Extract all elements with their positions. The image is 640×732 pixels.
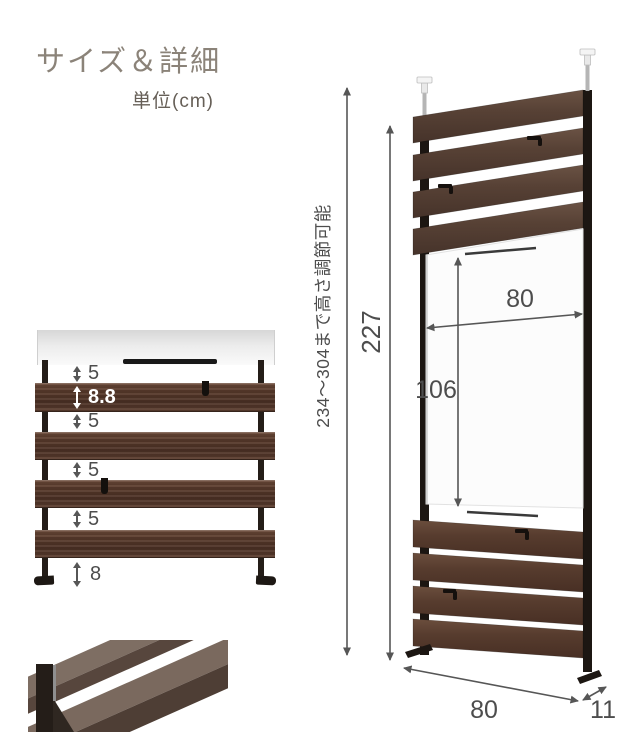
- wood-slat: [35, 480, 275, 508]
- dim-arrow-slat-width: [73, 386, 81, 409]
- dim-label-foot-clearance: 8: [90, 563, 101, 586]
- frame-height-label: 227: [356, 310, 386, 353]
- wood-slat: [35, 383, 275, 412]
- foot-right: [577, 670, 602, 684]
- foot-right: [256, 575, 276, 585]
- dim-label-slat-width: 8.8: [88, 386, 116, 409]
- depth-label: 11: [590, 696, 616, 724]
- wood-slat: [413, 619, 583, 658]
- dim-label-gap-top: 5: [88, 362, 99, 385]
- wood-slat: [413, 520, 583, 559]
- wood-slat: [35, 432, 275, 460]
- dim-arrow-gap-top: [73, 366, 81, 382]
- open-height-label: 106: [415, 376, 457, 404]
- dim-arrow-foot-clearance: [73, 562, 81, 587]
- perspective-view-diagram: 234〜304まで高さ調節可能 227 80 106 80 11: [300, 40, 640, 732]
- top-slats: [413, 90, 583, 255]
- dim-arrow-gap-3: [73, 462, 81, 478]
- hook-rail: [123, 359, 217, 364]
- dim-arrow-gap-4: [73, 510, 81, 528]
- bottom-slats: [413, 520, 583, 658]
- foot-left: [34, 575, 54, 585]
- tension-rod-left: [417, 77, 432, 119]
- mirror-panel: [426, 229, 583, 508]
- dim-label-gap-2: 5: [88, 410, 99, 433]
- dim-label-gap-3: 5: [88, 459, 99, 482]
- tension-rod-right: [580, 49, 595, 91]
- wood-slat: [413, 553, 583, 592]
- coat-hook: [101, 478, 108, 494]
- open-width-label: 80: [506, 285, 534, 313]
- hook-rail-bottom: [467, 512, 538, 516]
- coat-hook: [202, 381, 209, 396]
- wood-slat: [413, 586, 583, 625]
- page-title: サイズ＆詳細: [36, 38, 221, 80]
- width-label: 80: [470, 696, 498, 724]
- detail-photo: [28, 640, 228, 732]
- front-view-diagram: 5 8.8 5 5 5 8: [35, 330, 275, 592]
- unit-label: 単位(cm): [132, 86, 214, 113]
- wood-slat: [35, 530, 275, 558]
- photo-post-edge: [53, 665, 56, 701]
- height-range-label: 234〜304まで高さ調節可能: [313, 204, 333, 427]
- dim-arrow-gap-2: [73, 414, 81, 429]
- photo-post: [36, 664, 53, 732]
- pole-right: [583, 90, 592, 672]
- dim-label-gap-4: 5: [88, 508, 99, 531]
